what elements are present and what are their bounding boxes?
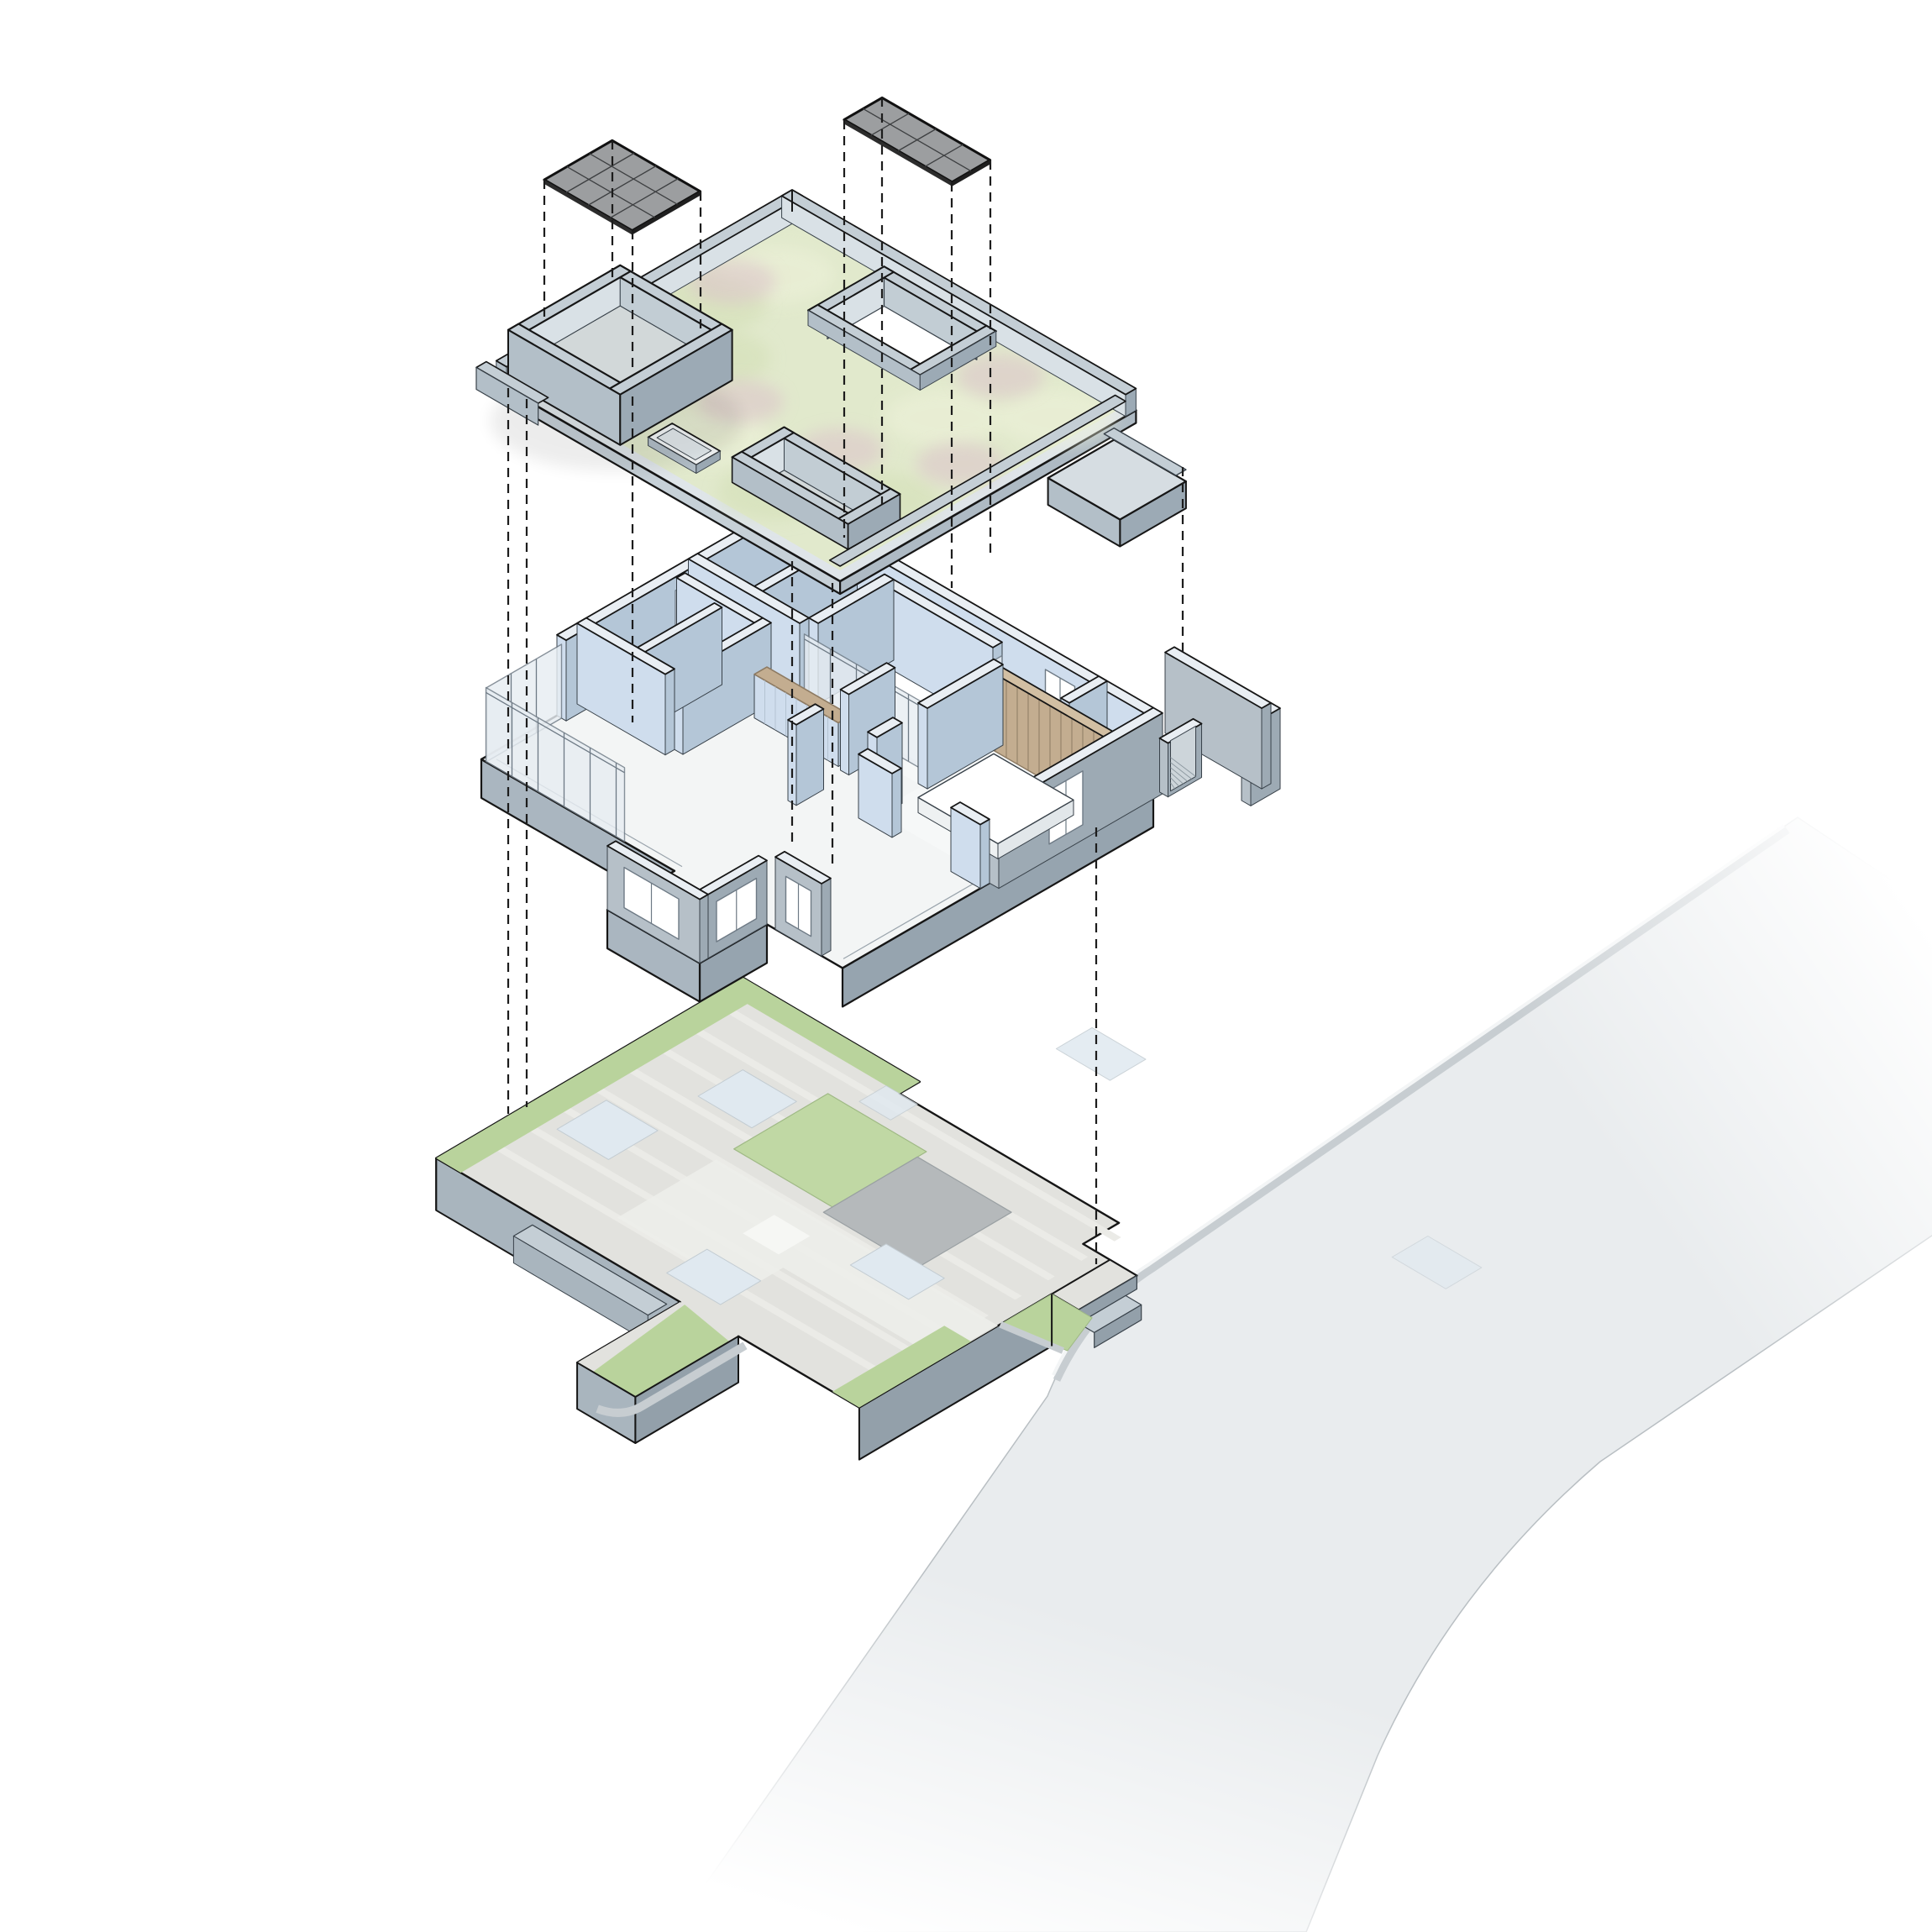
- pv-array-left: [544, 140, 701, 234]
- hall-wall: [796, 709, 824, 806]
- wall-end: [822, 879, 831, 956]
- site-plan-layer: [436, 978, 1141, 1460]
- wall-end: [980, 819, 990, 888]
- wall-end: [700, 895, 708, 963]
- wall-end: [841, 690, 849, 775]
- wall-end: [1160, 738, 1168, 797]
- wall-end: [892, 769, 901, 837]
- wall-end: [918, 703, 927, 789]
- green-roof-layer: [476, 190, 1186, 594]
- sedum-mottle: [885, 390, 1003, 447]
- diagram-canvas: [0, 0, 1932, 1932]
- pv-array-right: [844, 97, 990, 186]
- road-fade-bottom: [470, 1562, 1529, 1932]
- road-fade-top-right: [1386, 689, 1932, 1462]
- crossing-mark: [1056, 1027, 1146, 1080]
- wall-end: [1262, 703, 1271, 789]
- exploded-axonometric-diagram: [0, 0, 1932, 1932]
- wall-end: [665, 669, 675, 754]
- floor-plan-layer: [481, 499, 1280, 1006]
